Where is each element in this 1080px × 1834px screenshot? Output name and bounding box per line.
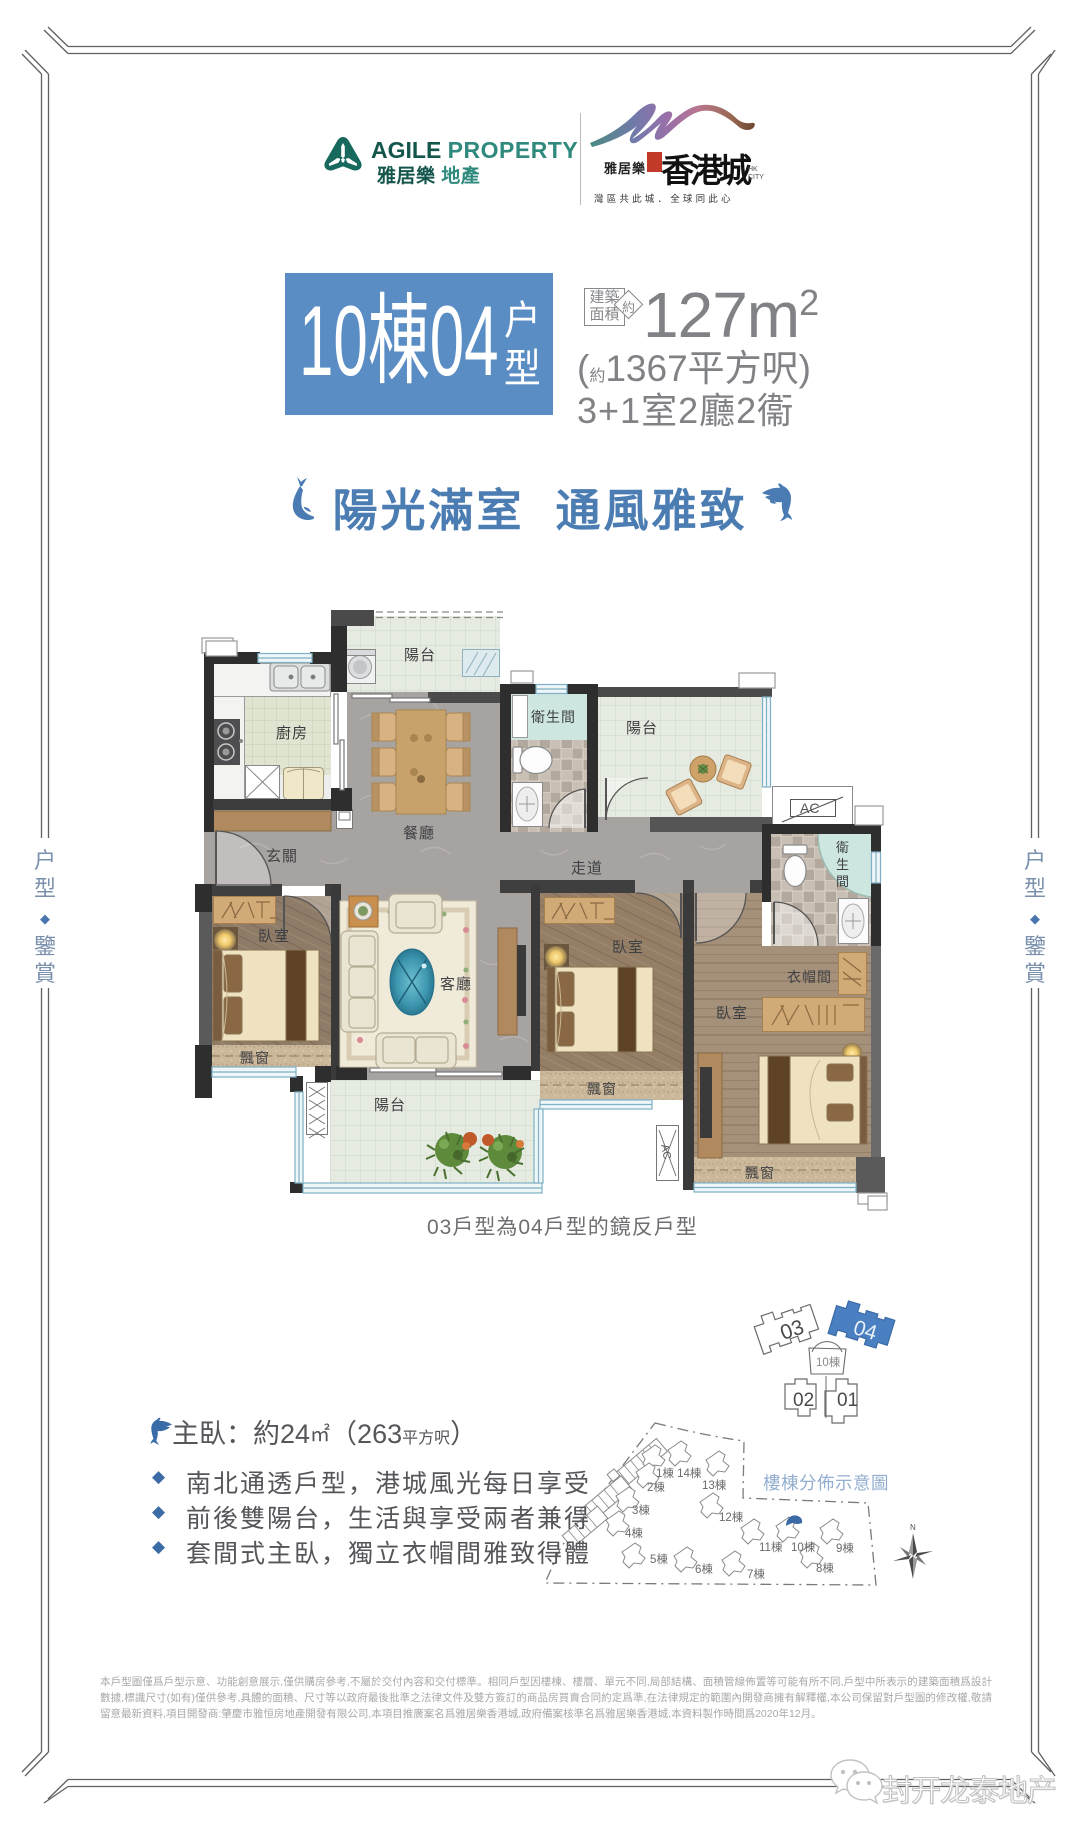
svg-text:陽台: 陽台 [374, 1097, 406, 1114]
svg-text:臥室: 臥室 [258, 928, 290, 945]
svg-text:02: 02 [793, 1390, 814, 1411]
svg-text:2棟: 2棟 [647, 1480, 665, 1494]
svg-text:間: 間 [836, 874, 850, 889]
svg-text:走道: 走道 [571, 860, 603, 877]
svg-text:6棟: 6棟 [695, 1562, 713, 1576]
svg-text:廚房: 廚房 [276, 724, 308, 742]
svg-text:01: 01 [837, 1390, 858, 1411]
svg-text:10棟: 10棟 [816, 1355, 841, 1369]
svg-text:5棟: 5棟 [650, 1552, 668, 1566]
svg-text:AC: AC [800, 800, 819, 816]
svg-text:1棟 14棟: 1棟 14棟 [656, 1466, 702, 1480]
svg-text:樓棟分佈示意圖: 樓棟分佈示意圖 [763, 1473, 889, 1493]
svg-text:衛生間: 衛生間 [531, 709, 576, 725]
svg-text:臥室: 臥室 [612, 939, 644, 956]
svg-text:生: 生 [836, 857, 850, 872]
svg-text:陽台: 陽台 [626, 720, 658, 737]
svg-text:7棟: 7棟 [747, 1567, 765, 1581]
svg-text:衣帽間: 衣帽間 [787, 969, 832, 985]
svg-text:臥室: 臥室 [716, 1005, 748, 1022]
svg-text:客廳: 客廳 [440, 975, 472, 993]
svg-text:13棟: 13棟 [702, 1478, 727, 1492]
svg-text:陽台: 陽台 [404, 647, 436, 664]
svg-text:飄窗: 飄窗 [745, 1165, 775, 1181]
svg-text:玄關: 玄關 [266, 848, 298, 865]
svg-text:12棟: 12棟 [719, 1510, 744, 1524]
svg-text:10棟: 10棟 [791, 1540, 816, 1554]
svg-text:11棟: 11棟 [759, 1540, 783, 1554]
svg-text:3棟: 3棟 [632, 1503, 650, 1517]
svg-text:8棟: 8棟 [816, 1561, 834, 1575]
svg-text:飄窗: 飄窗 [240, 1050, 270, 1066]
svg-text:餐廳: 餐廳 [403, 824, 435, 842]
svg-text:飄窗: 飄窗 [587, 1081, 617, 1097]
svg-text:9棟: 9棟 [836, 1541, 854, 1555]
svg-text:4棟: 4棟 [625, 1526, 643, 1540]
svg-text:N: N [910, 1523, 916, 1532]
svg-text:衛: 衛 [836, 840, 850, 855]
